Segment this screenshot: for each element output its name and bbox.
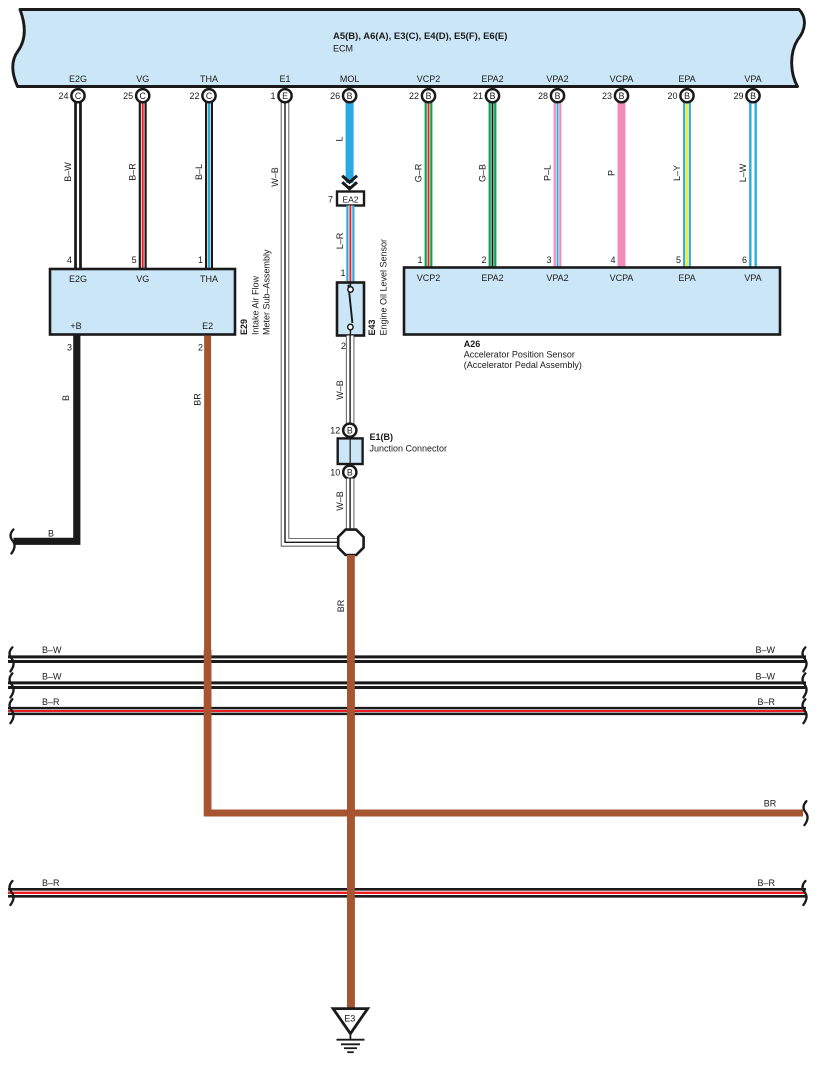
svg-text:2: 2 xyxy=(481,255,486,265)
svg-text:21: 21 xyxy=(473,91,483,101)
svg-text:VPA2: VPA2 xyxy=(546,273,568,283)
svg-text:E2G: E2G xyxy=(69,74,87,84)
svg-text:B: B xyxy=(61,395,71,401)
svg-text:B: B xyxy=(555,91,561,101)
svg-text:A5(B), A6(A), E3(C), E4(D), E5: A5(B), A6(A), E3(C), E4(D), E5(F), E6(E) xyxy=(333,31,507,42)
svg-text:BR: BR xyxy=(336,599,346,612)
svg-text:Intake Air Flow: Intake Air Flow xyxy=(251,275,261,335)
svg-text:L: L xyxy=(334,136,344,141)
svg-text:W–B: W–B xyxy=(270,167,280,187)
svg-text:A26: A26 xyxy=(464,339,481,349)
svg-text:E29: E29 xyxy=(239,319,249,335)
svg-text:B–R: B–R xyxy=(757,697,775,707)
svg-text:E2: E2 xyxy=(202,321,213,331)
svg-text:EPA2: EPA2 xyxy=(481,74,503,84)
svg-text:W–B: W–B xyxy=(335,380,345,400)
svg-text:22: 22 xyxy=(409,91,419,101)
svg-text:EPA: EPA xyxy=(678,273,695,283)
svg-text:(Accelerator Pedal Assembly): (Accelerator Pedal Assembly) xyxy=(464,360,582,370)
svg-text:10: 10 xyxy=(330,467,340,477)
svg-text:B–W: B–W xyxy=(755,645,775,655)
svg-text:B–R: B–R xyxy=(757,878,775,888)
svg-text:B: B xyxy=(619,91,625,101)
svg-text:E1: E1 xyxy=(279,74,290,84)
svg-text:C: C xyxy=(75,91,82,101)
svg-text:B–W: B–W xyxy=(755,672,775,682)
svg-text:3: 3 xyxy=(546,255,551,265)
svg-text:2: 2 xyxy=(198,343,203,353)
svg-text:B: B xyxy=(48,529,54,539)
svg-text:MOL: MOL xyxy=(340,74,360,84)
svg-text:G–R: G–R xyxy=(413,163,423,182)
svg-text:VPA2: VPA2 xyxy=(546,74,568,84)
svg-text:4: 4 xyxy=(610,255,615,265)
svg-text:7: 7 xyxy=(328,195,333,205)
svg-text:BR: BR xyxy=(764,799,777,809)
svg-text:E3: E3 xyxy=(344,1014,355,1024)
svg-text:W–B: W–B xyxy=(335,491,345,511)
svg-text:L–R: L–R xyxy=(335,232,345,249)
svg-text:EPA: EPA xyxy=(678,74,695,84)
svg-text:EA2: EA2 xyxy=(342,195,358,205)
svg-text:29: 29 xyxy=(733,91,743,101)
svg-text:E2G: E2G xyxy=(69,274,87,284)
svg-text:L–Y: L–Y xyxy=(672,165,682,181)
svg-text:C: C xyxy=(140,91,147,101)
svg-text:VCP2: VCP2 xyxy=(417,273,441,283)
svg-text:2: 2 xyxy=(341,341,346,351)
svg-text:VCPA: VCPA xyxy=(610,273,634,283)
svg-text:THA: THA xyxy=(200,274,218,284)
svg-text:3: 3 xyxy=(67,343,72,353)
svg-text:EPA2: EPA2 xyxy=(481,273,503,283)
svg-text:28: 28 xyxy=(538,91,548,101)
svg-text:VG: VG xyxy=(136,274,149,284)
svg-text:1: 1 xyxy=(198,255,203,265)
svg-text:B–L: B–L xyxy=(194,164,204,180)
svg-text:B: B xyxy=(426,91,432,101)
svg-text:B–W: B–W xyxy=(42,645,62,655)
svg-text:B: B xyxy=(684,91,690,101)
svg-text:B: B xyxy=(347,467,353,477)
svg-text:E: E xyxy=(282,91,288,101)
svg-text:VG: VG xyxy=(136,74,149,84)
svg-text:B–W: B–W xyxy=(42,672,62,682)
svg-text:Junction Connector: Junction Connector xyxy=(370,444,448,454)
svg-text:B–R: B–R xyxy=(42,878,60,888)
svg-text:5: 5 xyxy=(132,255,137,265)
svg-text:20: 20 xyxy=(667,91,677,101)
svg-text:P: P xyxy=(606,170,616,176)
svg-text:6: 6 xyxy=(742,255,747,265)
svg-text:B–R: B–R xyxy=(42,697,60,707)
svg-text:VCPA: VCPA xyxy=(610,74,634,84)
svg-text:VPA: VPA xyxy=(744,273,761,283)
svg-text:5: 5 xyxy=(676,255,681,265)
svg-text:1: 1 xyxy=(417,255,422,265)
svg-text:Accelerator Position Sensor: Accelerator Position Sensor xyxy=(464,350,575,360)
svg-text:B: B xyxy=(347,425,353,435)
svg-text:Engine Oil Level Sensor: Engine Oil Level Sensor xyxy=(379,239,389,336)
svg-text:THA: THA xyxy=(200,74,218,84)
svg-text:4: 4 xyxy=(67,255,72,265)
svg-text:E43: E43 xyxy=(367,319,377,335)
svg-text:12: 12 xyxy=(330,425,340,435)
svg-text:B: B xyxy=(490,91,496,101)
svg-text:23: 23 xyxy=(602,91,612,101)
svg-text:25: 25 xyxy=(123,91,133,101)
svg-text:1: 1 xyxy=(340,268,345,278)
svg-text:26: 26 xyxy=(330,91,340,101)
svg-text:B: B xyxy=(347,91,353,101)
svg-text:VCP2: VCP2 xyxy=(417,74,441,84)
svg-text:L–W: L–W xyxy=(738,163,748,182)
svg-text:+B: +B xyxy=(70,321,81,331)
svg-text:B–W: B–W xyxy=(63,162,73,182)
svg-text:BR: BR xyxy=(193,393,203,406)
svg-text:22: 22 xyxy=(189,91,199,101)
svg-text:24: 24 xyxy=(58,91,68,101)
svg-text:C: C xyxy=(206,91,213,101)
svg-text:Meter Sub–Assembly: Meter Sub–Assembly xyxy=(262,249,272,335)
svg-text:VPA: VPA xyxy=(744,74,761,84)
svg-text:G–B: G–B xyxy=(477,164,487,182)
svg-text:P–L: P–L xyxy=(542,165,552,181)
svg-text:B: B xyxy=(750,91,756,101)
svg-text:1: 1 xyxy=(270,91,275,101)
svg-text:B–R: B–R xyxy=(128,163,138,181)
svg-text:ECM: ECM xyxy=(333,44,353,54)
svg-text:E1(B): E1(B) xyxy=(370,432,394,442)
